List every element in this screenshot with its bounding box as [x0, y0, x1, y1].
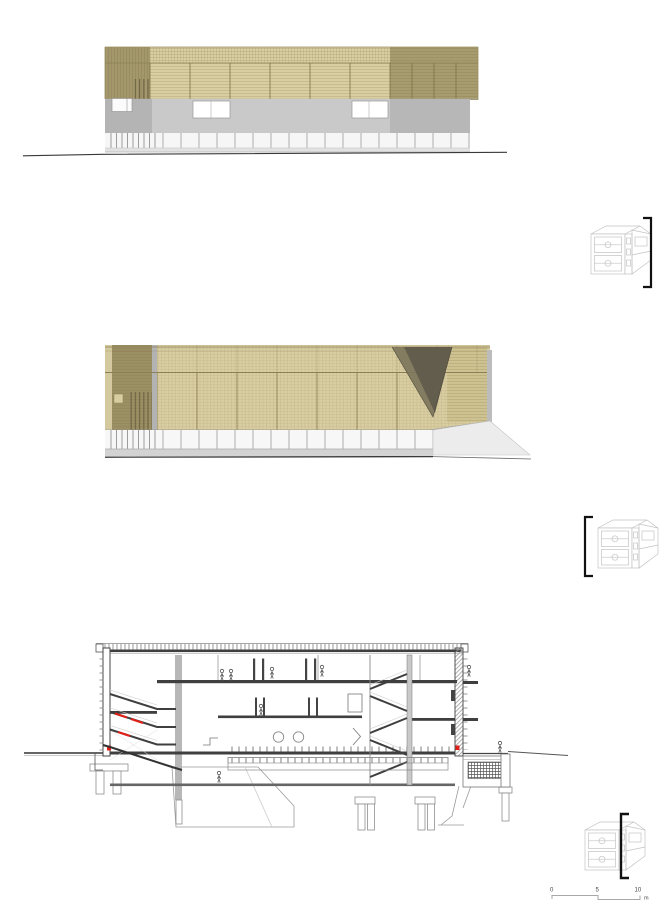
pile [418, 804, 425, 830]
door-swing [353, 728, 361, 745]
screen-slats [133, 79, 151, 99]
foundations [90, 764, 512, 830]
ground-line [105, 457, 433, 458]
elevation-marker-bracket [585, 517, 593, 576]
building-axon-thumbnail [591, 226, 651, 274]
person-figure [498, 741, 501, 752]
screen-slats [128, 392, 152, 430]
key-diagram-2 [585, 517, 658, 576]
pile [358, 804, 365, 830]
facade-gray-band [105, 99, 470, 134]
door-frame [253, 659, 255, 681]
key-diagram-1 [591, 218, 651, 287]
door-frame [262, 659, 264, 681]
person-figure [229, 669, 232, 680]
scale-unit-label: m [644, 896, 649, 902]
small-window [114, 394, 123, 403]
partitions [203, 655, 420, 745]
elevation-a [23, 47, 507, 156]
facade-base-colonnade [105, 133, 470, 152]
excavation-berm [172, 767, 294, 827]
door-frame [308, 698, 310, 717]
section-left-wall [95, 648, 111, 770]
window [112, 99, 132, 112]
section-right-wall [451, 648, 478, 756]
pile [368, 804, 375, 830]
door-frame [255, 698, 257, 717]
person-figure [220, 669, 223, 680]
door-frame [263, 698, 265, 717]
bleachers [228, 758, 448, 771]
person-figure [467, 665, 470, 676]
interior-wall [175, 655, 182, 800]
stair-red-nosing [118, 732, 130, 736]
stair-flight [370, 762, 407, 777]
facade-full-screen [105, 345, 492, 430]
architectural-drawing: 0 5 10 m [0, 0, 670, 924]
left-stair [103, 690, 182, 770]
pile [176, 800, 182, 824]
stair-flight [110, 694, 176, 709]
right-stair [370, 655, 412, 785]
ground-line-right [508, 752, 568, 756]
closet [348, 694, 362, 712]
round-opening [273, 732, 283, 742]
section-roof [96, 644, 468, 654]
ground-line [23, 152, 507, 156]
door-frame [305, 659, 307, 681]
facade-base-colonnade [105, 430, 433, 456]
pile [428, 804, 435, 830]
balcony-slab [463, 718, 478, 721]
right-annex [463, 754, 510, 788]
balcony-slab [463, 681, 478, 684]
grille-panel [468, 762, 501, 779]
scale-tick-label-10: 10 [635, 888, 642, 894]
scale-tick-label-0: 0 [550, 888, 554, 894]
person-figure [270, 667, 273, 678]
window [352, 101, 388, 118]
person-figure [259, 704, 262, 715]
stair-flight [370, 718, 407, 733]
scale-bar: 0 5 10 m [550, 888, 649, 902]
door-frame [314, 659, 316, 681]
buttress [438, 786, 471, 825]
pile [96, 771, 104, 794]
round-opening [293, 732, 303, 742]
facade-screen-band [105, 47, 478, 100]
key-diagram-3 [585, 814, 645, 878]
person-figure [320, 665, 323, 676]
red-accent [456, 746, 460, 751]
door-frame [316, 698, 318, 717]
window [193, 101, 230, 118]
pile [113, 771, 121, 794]
ground-line-extension [433, 457, 531, 459]
pile [502, 793, 509, 821]
stair-flight [370, 696, 407, 711]
drawing-sheet: 0 5 10 m [0, 0, 670, 924]
screen-bay-mullions [157, 373, 433, 431]
elevation-b [105, 345, 531, 459]
scale-bar-line [552, 896, 640, 900]
building-axon-thumbnail [598, 520, 658, 568]
scale-tick-label-5: 5 [596, 888, 600, 894]
building-axon-thumbnail [585, 822, 645, 870]
cross-section [24, 644, 568, 831]
